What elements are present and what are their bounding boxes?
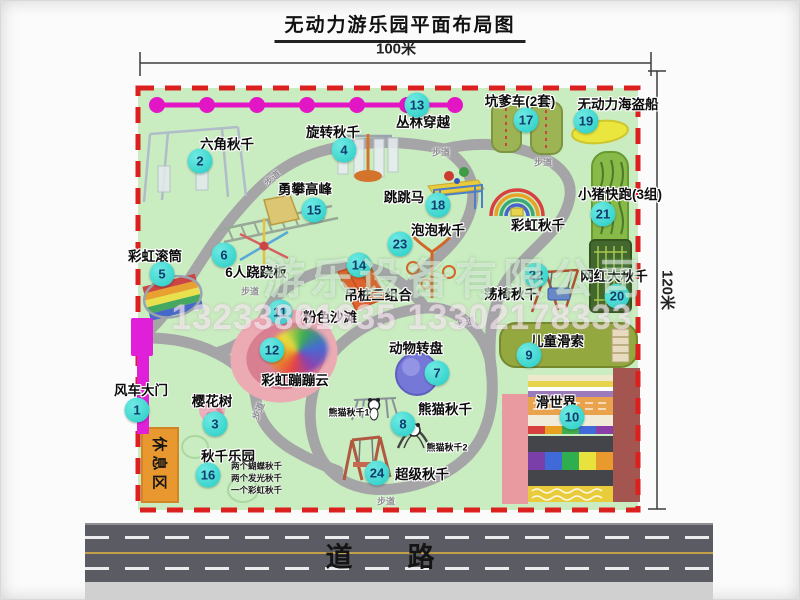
park-plan-page: 无动力游乐园平面布局图 (0, 0, 800, 600)
width-dimension-label: 100米 (376, 38, 416, 59)
park-map-canvas (0, 0, 800, 600)
road-label: 道 路 (326, 535, 449, 574)
rest-area-label: 休息区 (150, 436, 171, 493)
height-dimension-label: 120米 (658, 270, 679, 310)
animal-carousel-icon (396, 353, 438, 395)
big-swing-platform (590, 240, 631, 312)
kids-zipline-bar (500, 323, 637, 367)
road-strip: 道 路 (85, 523, 713, 584)
road-shoulder (85, 582, 713, 600)
